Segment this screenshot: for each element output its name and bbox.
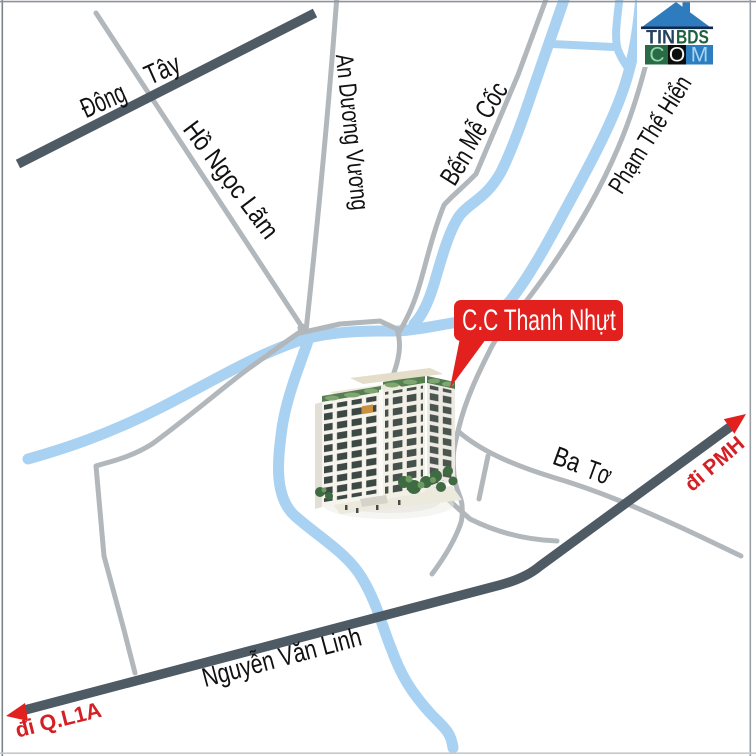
svg-text:C.C Thanh Nhựt: C.C Thanh Nhựt (462, 305, 616, 337)
svg-text:C: C (649, 44, 664, 67)
svg-text:M: M (691, 44, 709, 67)
svg-text:O: O (669, 44, 685, 67)
